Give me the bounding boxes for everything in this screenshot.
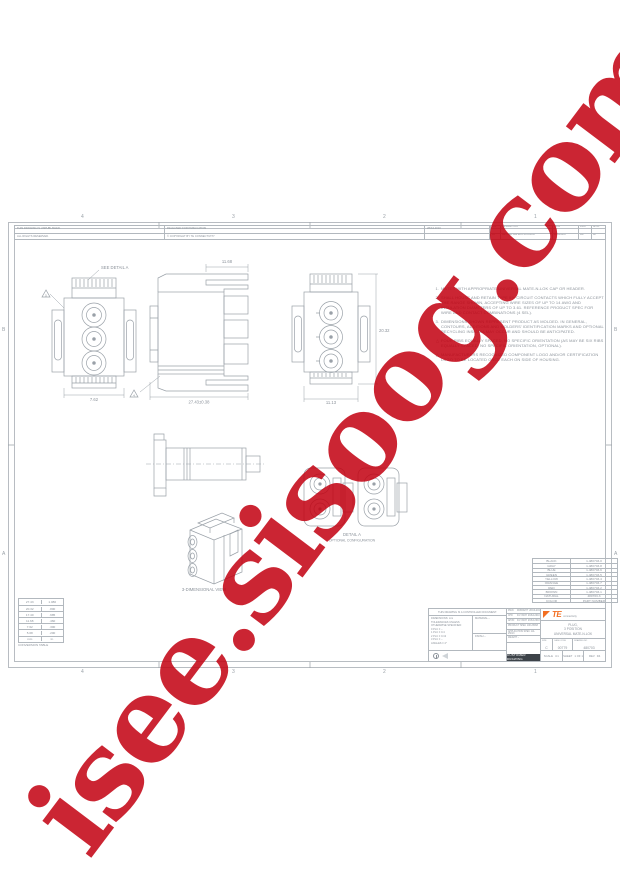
note-text: MATES WITH APPROPRIATE UNIVERSAL MATE-N-…: [441, 286, 604, 291]
zone-col-label: 3: [232, 215, 235, 220]
revisions-cell: DL: [592, 234, 605, 240]
detail-a-view: [304, 468, 407, 526]
table-row: RED1-480703-2: [533, 585, 617, 589]
rev-strip-cell: [425, 234, 489, 240]
inch-cell: .460: [42, 619, 64, 623]
note-item: △ FOUR RIBS EQUALLY SPACED, NO SPECIFIC …: [432, 338, 604, 348]
tolerance-line: ANGLES ± 4°: [431, 642, 470, 646]
note-flag-marker: △: [432, 338, 439, 348]
side-length-dim: 27.43±0.38: [189, 400, 211, 405]
revisions-header-cell: LTR: [491, 226, 501, 233]
rev-strip-cell: THIS DRAWING IS UNPUBLISHED.: [15, 226, 165, 233]
weight-field: WEIGHT –: [507, 636, 540, 642]
zone-row-label: A: [614, 552, 617, 557]
zone-col-label: 4: [81, 215, 84, 220]
projection-circle-icon: [433, 653, 439, 659]
rev-strip-cell: RELEASED FOR PUBLICATION: [165, 226, 425, 233]
note-marker: 3.: [432, 319, 439, 335]
mm-cell: 7.62: [19, 625, 42, 629]
projection-triangle-icon: [442, 653, 448, 659]
title-block-signoff: DWNM.BRIGHT28JUL2010 CHKD.LYNCH28JUL2010…: [507, 609, 541, 661]
customer-drawing-banner: CUSTOMER DRAWING: [507, 654, 540, 662]
units-value: mm: [449, 617, 453, 620]
inch-header: in.: [42, 637, 64, 641]
front-width-dim: 7.62: [90, 397, 99, 402]
table-row: 11.68.460: [19, 617, 63, 623]
revisions-header-cell: DATE: [553, 226, 579, 233]
material-field: MATERIAL –: [473, 616, 506, 633]
title-block-tolerances: THIS DRAWING IS A CONTROLLED DOCUMENT. D…: [429, 609, 507, 661]
page: { "watermark": { "text": "isee.sisoog.co…: [0, 0, 620, 877]
note-text: SHALL HOUSE AND RETAIN TYPE III+ CIRCUIT…: [441, 295, 604, 316]
zone-row-label: A: [2, 552, 5, 557]
note-text: FOUR RIBS EQUALLY SPACED, NO SPECIFIC OR…: [441, 338, 604, 348]
conversion-table: 27.431.080 20.32.800 17.40.685 11.68.460…: [18, 598, 64, 643]
revisions-cell: REVISED PER ECO-10-012345: [501, 234, 553, 240]
table-header-row: mmin.: [19, 636, 63, 642]
cage-code-field: CAGE CODE00779: [553, 639, 573, 650]
isometric-view: [188, 513, 242, 584]
revision-strip: THIS DRAWING IS UNPUBLISHED. RELEASED FO…: [14, 225, 490, 240]
note-item: 3. DIMENSIONS SHOWN REPRESENT PRODUCT AS…: [432, 319, 604, 335]
side-note-flag: 4: [133, 393, 135, 397]
table-row: GREEN1-480703-5: [533, 572, 617, 576]
table-row: BROWN1-480703-1: [533, 589, 617, 593]
mm-cell: 11.68: [19, 619, 42, 623]
color-cell: BLACK: [533, 559, 571, 563]
title-line: UNIVERSAL MATE-N-LOK: [554, 632, 592, 636]
table-row: BLUE1-480703-6: [533, 568, 617, 572]
inch-cell: .300: [42, 625, 64, 629]
zone-col-label: 4: [81, 670, 84, 675]
finish-field: FINISH –: [473, 633, 506, 651]
table-header-row: COLORPART NUMBER: [533, 598, 617, 602]
rear-height-dim: 20.32: [379, 328, 390, 333]
table-row: BLACK1-480703-0: [533, 559, 617, 563]
table-row: 7.62.300: [19, 623, 63, 629]
profile-view: [146, 434, 266, 496]
inch-cell: .685: [42, 613, 64, 617]
table-row: 5.08.200: [19, 629, 63, 635]
front-note-flag: 5: [45, 293, 47, 297]
zone-col-label: 1: [534, 215, 537, 220]
note-marker: 2.: [432, 295, 439, 316]
note-flag-marker: △: [432, 352, 439, 362]
side-depth-dim: 11.68: [222, 259, 233, 264]
drawing-number-field: DRAWING NO480703: [573, 639, 605, 650]
drawing-sheet: 4 3 2 1 4 3 2 1 B A B A: [8, 222, 612, 668]
revisions-cell: MB: [579, 234, 592, 240]
mm-header: mm: [19, 637, 42, 641]
inch-cell: .800: [42, 607, 64, 611]
revisions-header-cell: APVD: [592, 226, 605, 233]
zone-row-label: B: [614, 328, 617, 333]
mm-cell: 20.32: [19, 607, 42, 611]
zone-row-label: B: [2, 328, 5, 333]
detail-a-subcaption: OPTIONAL CONFIGURATION: [329, 539, 376, 543]
revision-field: REVD4: [584, 651, 605, 661]
isometric-caption: 3-DIMENSIONAL VIEW: [182, 587, 226, 592]
drawing-title: PLUG, 3 POSITION UNIVERSAL MATE-N-LOK: [541, 621, 605, 639]
note-item: 2. SHALL HOUSE AND RETAIN TYPE III+ CIRC…: [432, 295, 604, 316]
tolerance-list: DIMENSIONS: mm TOLERANCES UNLESS OTHERWI…: [429, 616, 473, 650]
zone-col-label: 2: [383, 670, 386, 675]
zone-col-label: 3: [232, 670, 235, 675]
sheet-field: SHEET1 OF 1: [563, 651, 585, 661]
part-number-cell: 1-480703-0: [571, 559, 617, 563]
revisions-cell: D4: [491, 234, 501, 240]
note-marker: 1.: [432, 286, 439, 291]
revisions-box: LTR DESCRIPTION DATE DWN APVD D4 REVISED…: [490, 225, 606, 240]
te-logo-subtext: connectivity: [563, 615, 577, 618]
rev-strip-cell: 28JUL2010: [425, 226, 489, 233]
inch-cell: 1.080: [42, 600, 64, 604]
projection-symbol: [429, 650, 506, 661]
rear-view: [292, 274, 378, 402]
color-header: COLOR: [533, 599, 571, 603]
zone-col-label: 1: [534, 670, 537, 675]
title-block-identity: TE connectivity PLUG, 3 POSITION UNIVERS…: [541, 609, 605, 661]
conversion-table-caption: CONVERSION TABLE: [18, 643, 88, 647]
note-text: MANUFACTURERS RECOGNIZED COMPONENT LOGO …: [441, 352, 604, 362]
rev-strip-cell: ALL RIGHTS RESERVED.: [15, 234, 165, 240]
rear-width-dim: 11.13: [326, 400, 337, 405]
table-row: ORANGE1-480703-7: [533, 581, 617, 585]
te-logo-icon: [543, 611, 550, 618]
mm-cell: 17.40: [19, 613, 42, 617]
table-row: YELLOW1-480703-4: [533, 576, 617, 580]
note-item: 1. MATES WITH APPROPRIATE UNIVERSAL MATE…: [432, 286, 604, 291]
dimensions-label: DIMENSIONS:: [431, 617, 448, 620]
mm-cell: 5.08: [19, 631, 42, 635]
table-row: NATURAL480703-3: [533, 594, 617, 598]
table-row: GRAY1-480703-8: [533, 563, 617, 567]
zone-col-label: 2: [383, 215, 386, 220]
title-block: THIS DRAWING IS A CONTROLLED DOCUMENT. D…: [428, 608, 606, 662]
revisions-header-cell: DWN: [579, 226, 592, 233]
detail-a-caption: DETAIL A: [343, 532, 361, 537]
size-field: SIZEC: [541, 639, 553, 650]
te-logo-text: TE: [552, 610, 561, 619]
side-view: [130, 264, 248, 400]
table-row: 20.32.800: [19, 605, 63, 611]
parts-table: BLACK1-480703-0 GRAY1-480703-8 BLUE1-480…: [532, 558, 618, 603]
inch-cell: .200: [42, 631, 64, 635]
revisions-header-cell: DESCRIPTION: [501, 226, 553, 233]
revisions-cell: 28JUL2010: [553, 234, 579, 240]
see-detail-label: SEE DETAIL A: [101, 265, 129, 270]
note-item: △ MANUFACTURERS RECOGNIZED COMPONENT LOG…: [432, 352, 604, 362]
rev-strip-cell: © COPYRIGHT BY TE CONNECTIVITY: [165, 234, 425, 240]
controlled-document-note: THIS DRAWING IS A CONTROLLED DOCUMENT.: [429, 609, 506, 616]
note-text: DIMENSIONS SHOWN REPRESENT PRODUCT AS MO…: [441, 319, 604, 335]
notes-list: 1. MATES WITH APPROPRIATE UNIVERSAL MATE…: [432, 286, 604, 366]
part-number-header: PART NUMBER: [571, 599, 617, 603]
table-row: 17.40.685: [19, 611, 63, 617]
scale-field: SCALE4:1: [541, 651, 563, 661]
front-view: [42, 270, 136, 398]
mm-cell: 27.43: [19, 600, 42, 604]
